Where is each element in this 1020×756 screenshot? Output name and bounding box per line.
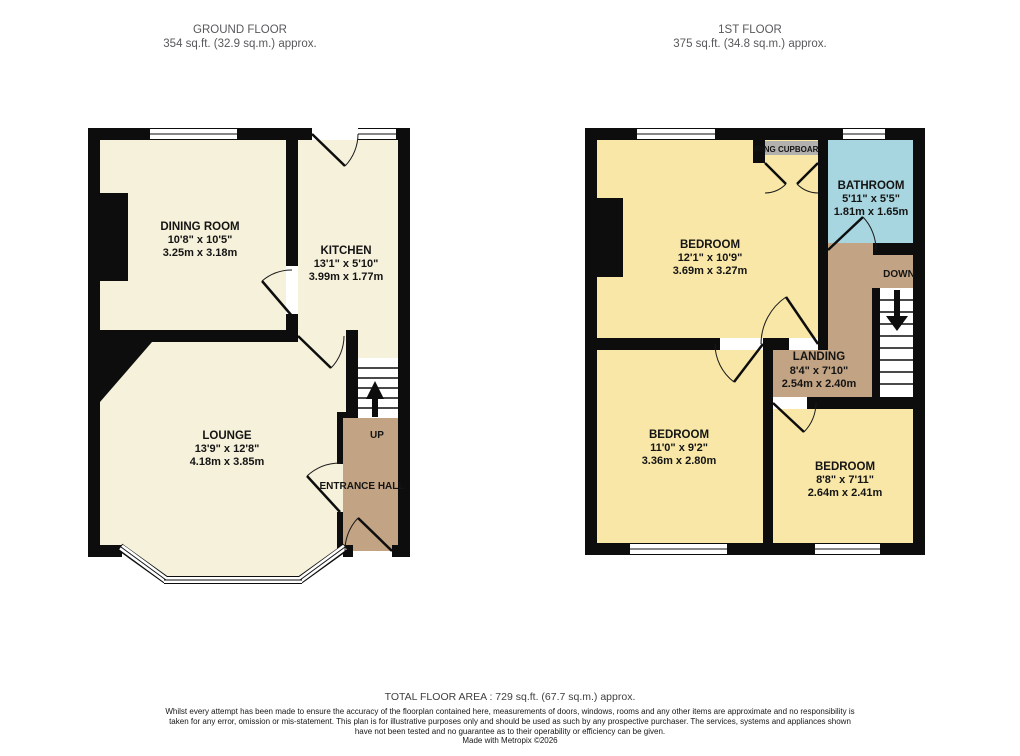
dining-room-label: DINING ROOM [160, 221, 239, 233]
bedroom1-label: BEDROOM [680, 239, 740, 251]
lounge-imperial: 13'9" x 12'8" [195, 443, 260, 455]
bedroom3-label: BEDROOM [815, 461, 875, 473]
bathroom-label: BATHROOM [838, 180, 905, 192]
landing-imperial: 8'4" x 7'10" [790, 365, 848, 377]
landing-label: LANDING [793, 351, 845, 363]
entrance-hall-label: ENTRANCE HALL [320, 481, 405, 492]
chimney-breast-first [597, 198, 623, 277]
dining-room-imperial: 10'8" x 10'5" [168, 234, 233, 246]
bedroom2-imperial: 11'0" x 9'2" [650, 442, 708, 454]
first-floor-plan: BEDROOM 12'1" x 10'9" 3.69m x 3.27m BATH… [585, 128, 925, 555]
ground-floor-plan: DINING ROOM 10'8" x 10'5" 3.25m x 3.18m … [88, 128, 410, 580]
bedroom1-window [637, 129, 715, 139]
down-label: DOWN [883, 269, 915, 280]
total-floor-area: TOTAL FLOOR AREA : 729 sq.ft. (67.7 sq.m… [160, 691, 860, 703]
bedroom3-window [815, 544, 880, 554]
lounge-metric: 4.18m x 3.85m [190, 456, 265, 468]
floorplan-canvas: DINING ROOM 10'8" x 10'5" 3.25m x 3.18m … [0, 0, 1020, 756]
bedroom3-imperial: 8'8" x 7'11" [816, 474, 874, 486]
bathroom-imperial: 5'11" x 5'5" [842, 193, 900, 205]
bedroom3-metric: 2.64m x 2.41m [808, 487, 883, 499]
staircase-up [358, 358, 398, 418]
bedroom1-metric: 3.69m x 3.27m [673, 265, 748, 277]
bedroom1-imperial: 12'1" x 10'9" [678, 252, 743, 264]
lounge-label: LOUNGE [202, 430, 252, 442]
staircase-down [880, 288, 913, 397]
metropix-credit: Made with Metropix ©2026 [160, 736, 860, 746]
bedroom2-metric: 3.36m x 2.80m [642, 455, 717, 467]
bedroom2-label: BEDROOM [649, 429, 709, 441]
kitchen-imperial: 13'1" x 5'10" [314, 258, 379, 270]
chimney-breast-ground [100, 193, 128, 281]
landing-metric: 2.54m x 2.40m [782, 378, 857, 390]
dining-room-metric: 3.25m x 3.18m [163, 247, 238, 259]
bathroom-window [843, 129, 885, 139]
kitchen-metric: 3.99m x 1.77m [309, 271, 384, 283]
dining-window [150, 129, 237, 139]
up-label: UP [370, 430, 384, 441]
bathroom-metric: 1.81m x 1.65m [834, 206, 909, 218]
kitchen-label: KITCHEN [320, 245, 371, 257]
bedroom2-window [630, 544, 727, 554]
airing-cupboard-label: AIRING CUPBOARD [748, 145, 825, 154]
kitchen-window [358, 129, 396, 139]
kitchen-landing-strip [358, 342, 398, 358]
footer: TOTAL FLOOR AREA : 729 sq.ft. (67.7 sq.m… [160, 691, 860, 746]
kitchen-fill [298, 140, 398, 342]
disclaimer-text: Whilst every attempt has been made to en… [160, 707, 860, 736]
